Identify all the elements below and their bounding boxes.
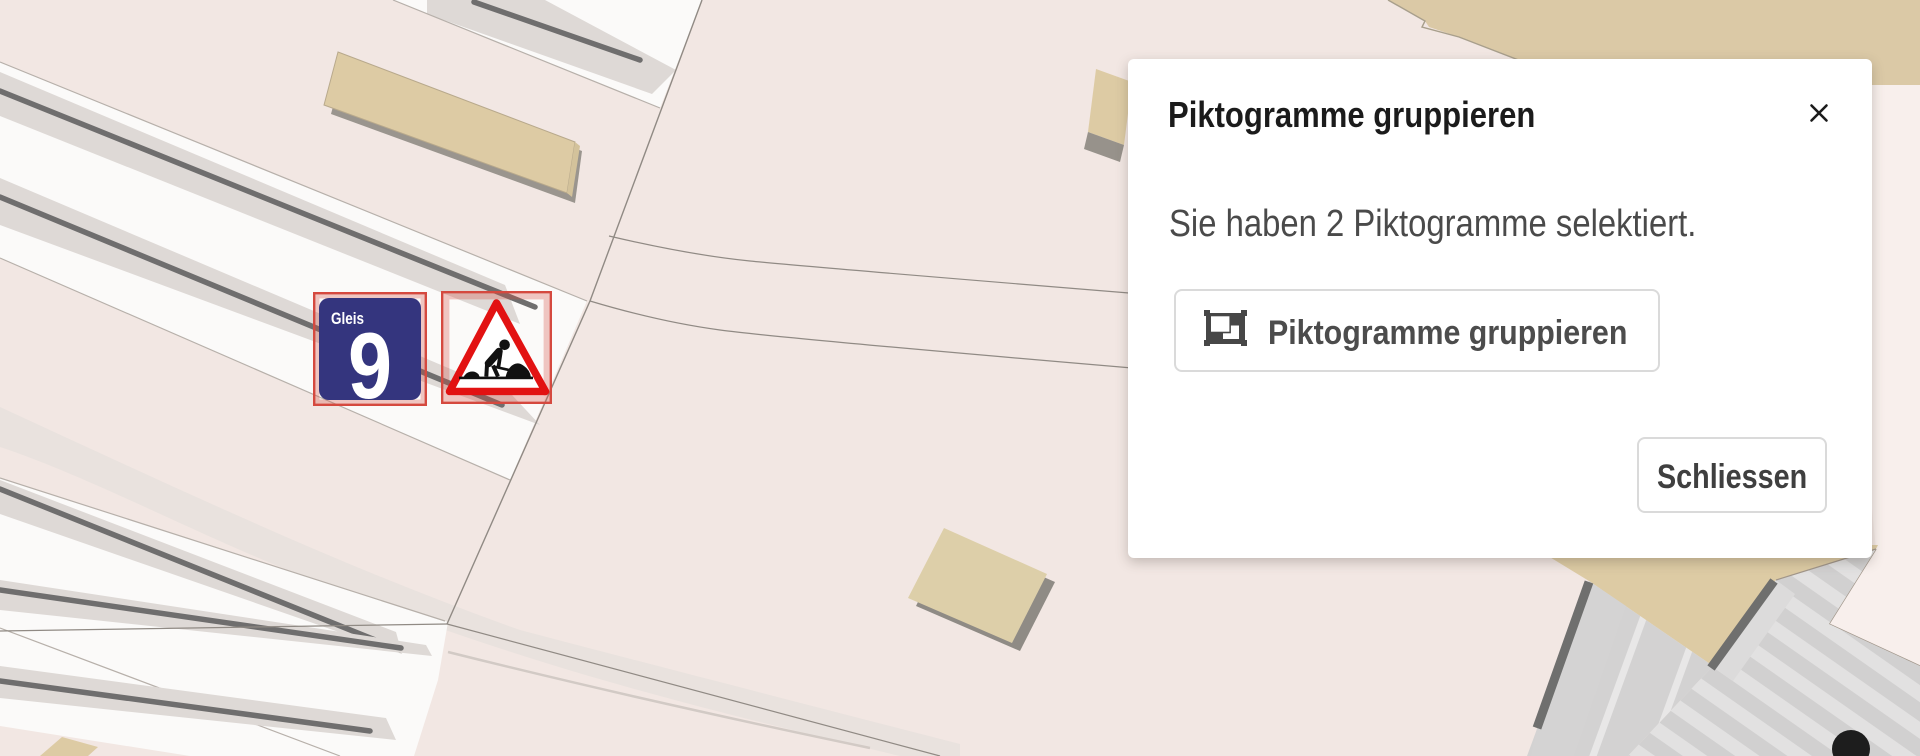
svg-text:9: 9 — [348, 313, 392, 418]
